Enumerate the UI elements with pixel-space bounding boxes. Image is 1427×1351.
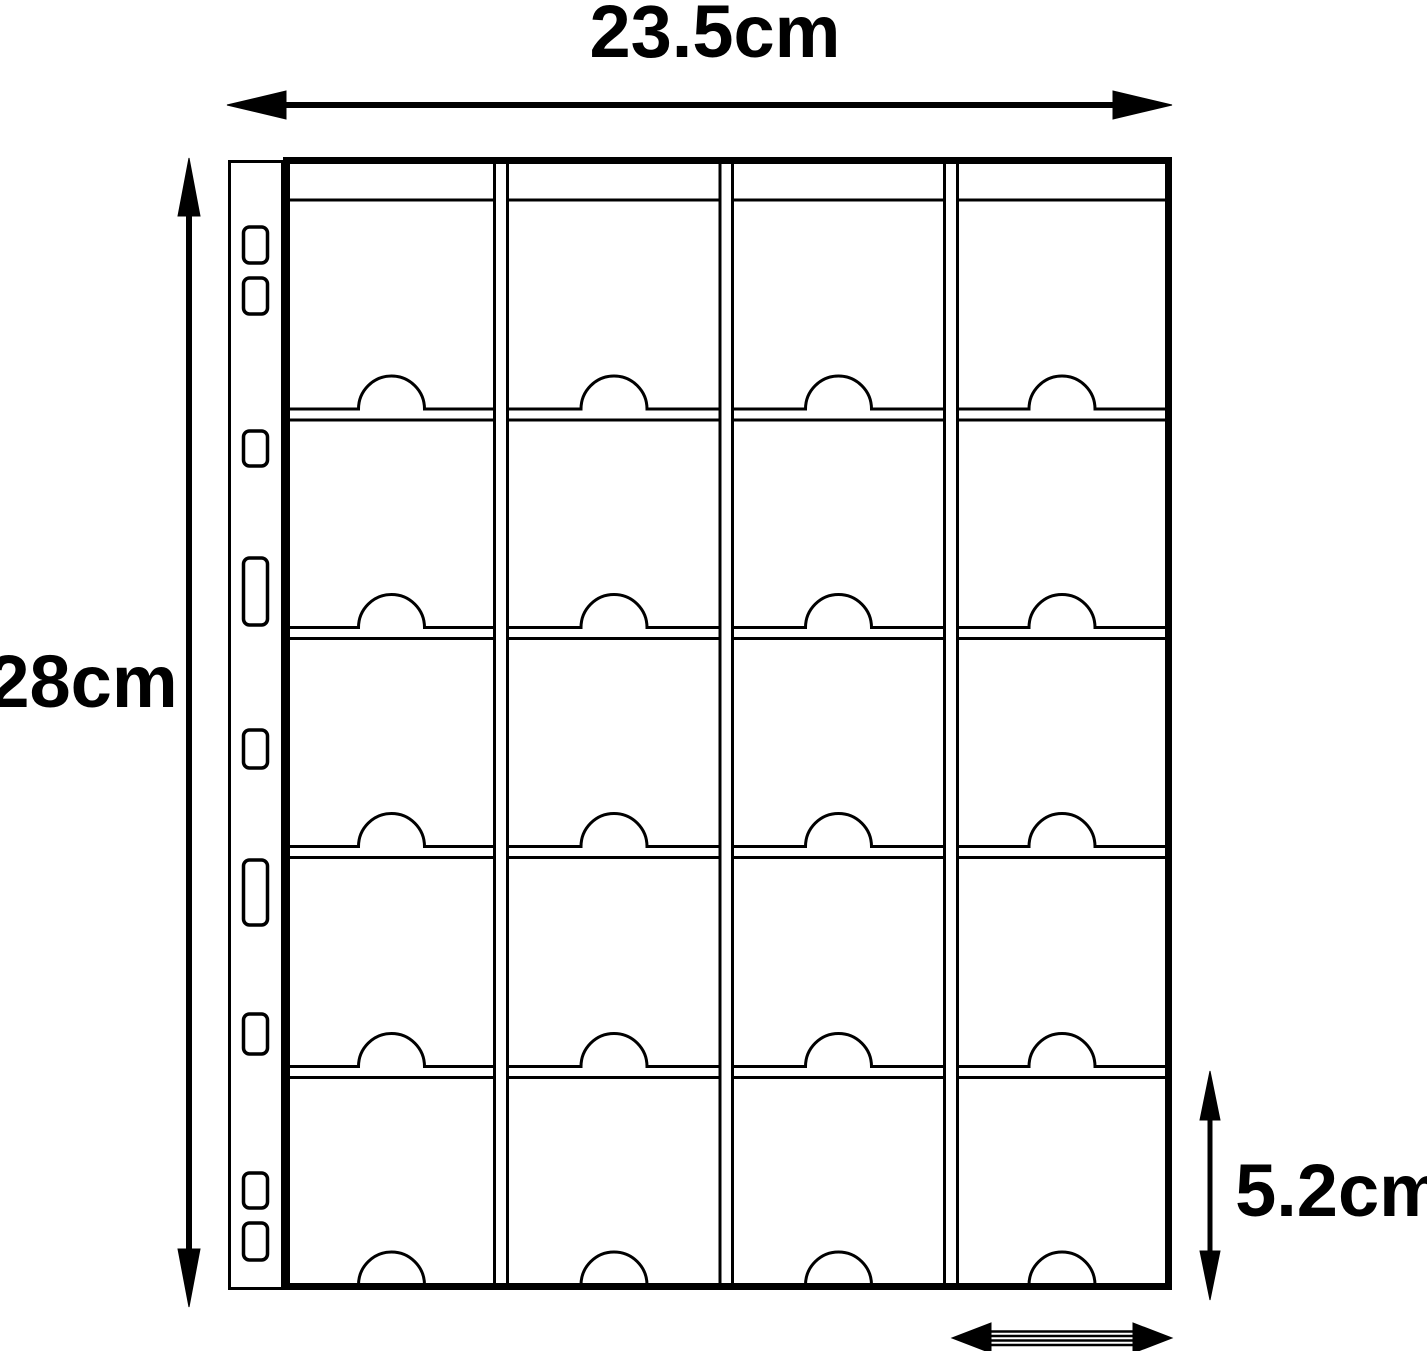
binder-hole bbox=[244, 278, 268, 314]
pocket-height-dimension-label: 5.2cm bbox=[1235, 1149, 1427, 1232]
page-outline bbox=[287, 161, 1169, 1287]
binder-hole bbox=[244, 558, 268, 625]
binder-hole bbox=[244, 1014, 268, 1054]
height-dimension: 28cm bbox=[0, 158, 200, 1307]
binder-hole bbox=[244, 730, 268, 768]
width-dimension-label: 23.5cm bbox=[590, 0, 841, 73]
pocket-height-dimension-arrow bbox=[1200, 1071, 1220, 1300]
pocket-page-dimension-diagram: 23.5cm 28cm 5.2cm bbox=[0, 0, 1427, 1351]
pocket-height-dimension: 5.2cm bbox=[1200, 1071, 1427, 1300]
binder-page bbox=[230, 161, 1169, 1289]
binder-hole bbox=[244, 431, 268, 466]
binder-hole bbox=[244, 227, 268, 263]
binder-hole bbox=[244, 860, 268, 925]
binder-hole bbox=[244, 1223, 268, 1260]
width-dimension-arrow bbox=[227, 91, 1172, 119]
binding-strip bbox=[230, 162, 283, 1289]
width-dimension: 23.5cm bbox=[227, 0, 1172, 119]
height-dimension-label: 28cm bbox=[0, 640, 178, 723]
binder-hole bbox=[244, 1173, 268, 1208]
height-dimension-arrow bbox=[178, 158, 200, 1307]
binder-holes bbox=[244, 227, 268, 1260]
pocket-width-dimension-arrow bbox=[952, 1323, 1172, 1351]
